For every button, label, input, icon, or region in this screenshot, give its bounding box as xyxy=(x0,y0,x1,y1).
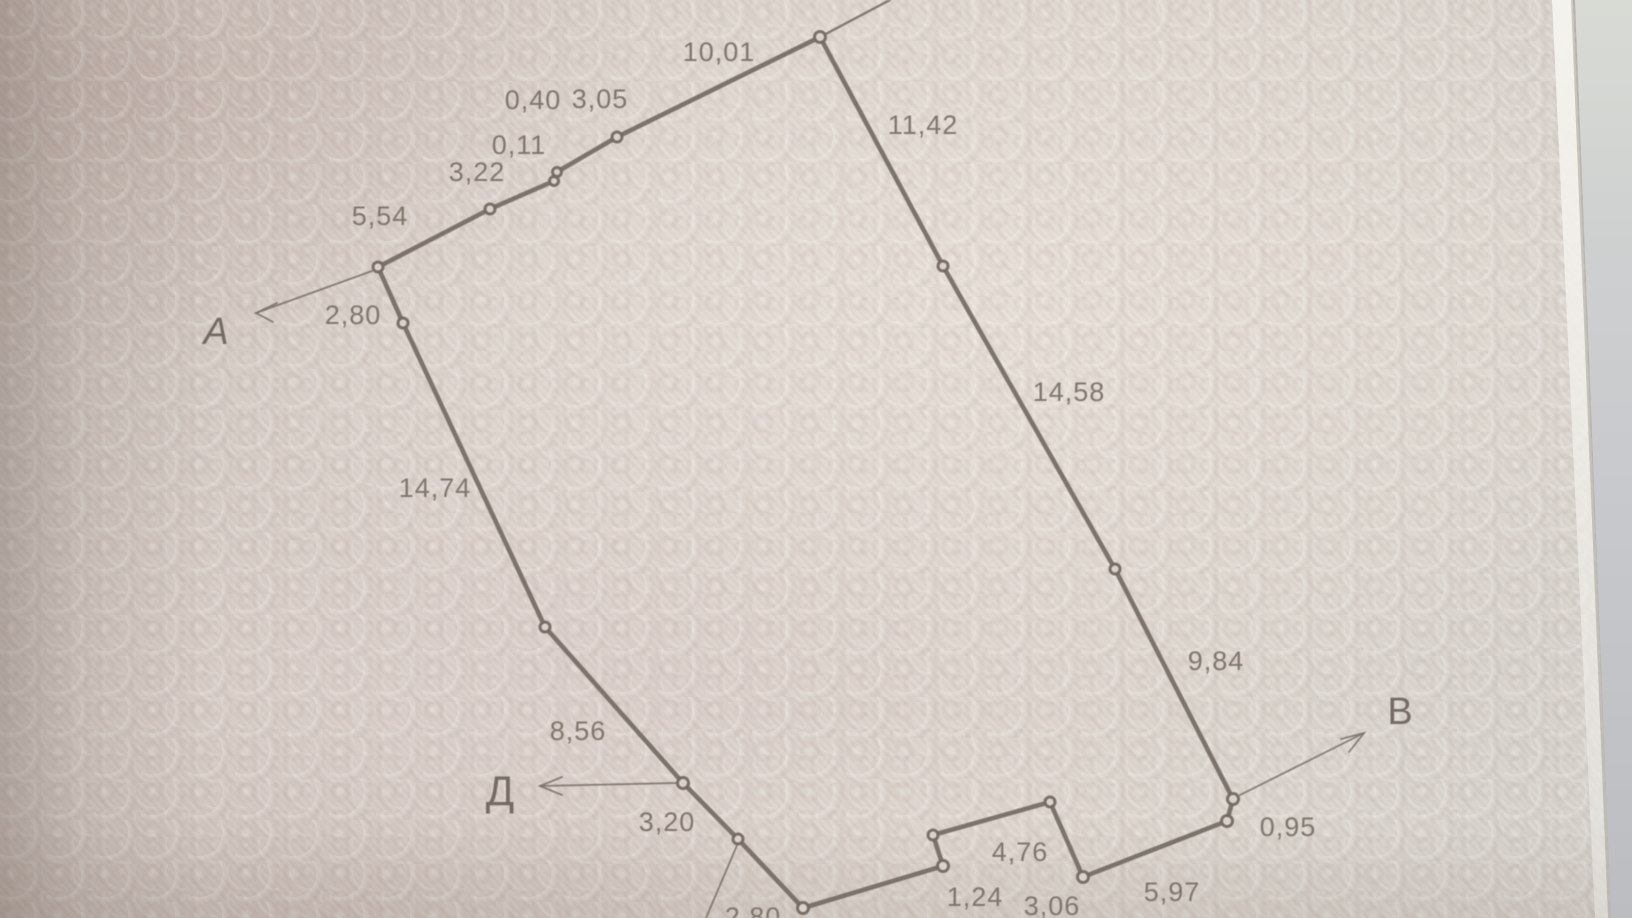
edge-length-label: 3,06 xyxy=(1024,891,1081,918)
edge-length-label: 0,11 xyxy=(492,130,547,160)
ref-point-d-label: Д xyxy=(486,767,514,814)
ref-point-a-label: А xyxy=(201,311,228,353)
vertex-marker xyxy=(938,861,949,872)
edge-length-label: 4,76 xyxy=(992,837,1049,867)
edge-length-label: 1,24 xyxy=(947,882,1004,912)
edge-length-label: 9,84 xyxy=(1188,646,1245,676)
parcel-sketch-svg: 10,01 0,40 3,05 0,11 3,22 5,54 2,80 14,7… xyxy=(0,0,1632,918)
ref-point-v-label: В xyxy=(1387,691,1412,733)
edge-length-label: 14,74 xyxy=(399,473,472,503)
vertex-marker xyxy=(612,132,622,142)
edge-length-label: 0,95 xyxy=(1260,812,1317,842)
edge-length-label: 5,97 xyxy=(1144,877,1201,907)
vertex-marker xyxy=(815,32,826,43)
edge-length-label: 5,54 xyxy=(352,201,409,231)
edge-length-label: 8,56 xyxy=(550,716,607,746)
vertex-marker xyxy=(1110,564,1120,574)
vertex-marker xyxy=(1078,872,1089,883)
vertex-marker xyxy=(733,834,743,844)
edge-length-label-cut-off: 2,80 xyxy=(725,902,782,918)
edge-length-label: 11,42 xyxy=(888,110,959,140)
edge-length-label: 10,01 xyxy=(683,37,756,67)
edge-length-label: 3,05 xyxy=(572,84,629,114)
photo-of-survey-sketch: 10,01 0,40 3,05 0,11 3,22 5,54 2,80 14,7… xyxy=(0,0,1632,918)
vertex-marker xyxy=(938,261,948,271)
vertex-marker xyxy=(553,168,562,177)
edge-length-label: 3,20 xyxy=(639,807,696,837)
vertex-marker xyxy=(373,262,383,272)
vertex-marker xyxy=(398,318,408,328)
vertex-marker xyxy=(1222,816,1233,827)
vertex-marker xyxy=(678,778,689,789)
arrow-line-to-point-v xyxy=(1240,733,1364,795)
reference-point-letters: А Д В xyxy=(201,311,1412,814)
edge-length-label: 14,58 xyxy=(1033,377,1106,407)
vertex-marker xyxy=(798,903,809,914)
vertex-marker xyxy=(928,830,938,840)
edge-length-label: 3,22 xyxy=(449,157,506,187)
vertex-marker xyxy=(1045,797,1055,807)
boundary-extension-line-top xyxy=(820,0,890,37)
vertex-marker xyxy=(540,622,550,632)
vertex-marker xyxy=(485,204,495,214)
arrow-line-to-point-d xyxy=(540,783,676,786)
edge-length-label: 0,40 xyxy=(505,85,562,115)
edge-length-label: 2,80 xyxy=(325,300,382,330)
vertex-marker xyxy=(1228,794,1239,805)
